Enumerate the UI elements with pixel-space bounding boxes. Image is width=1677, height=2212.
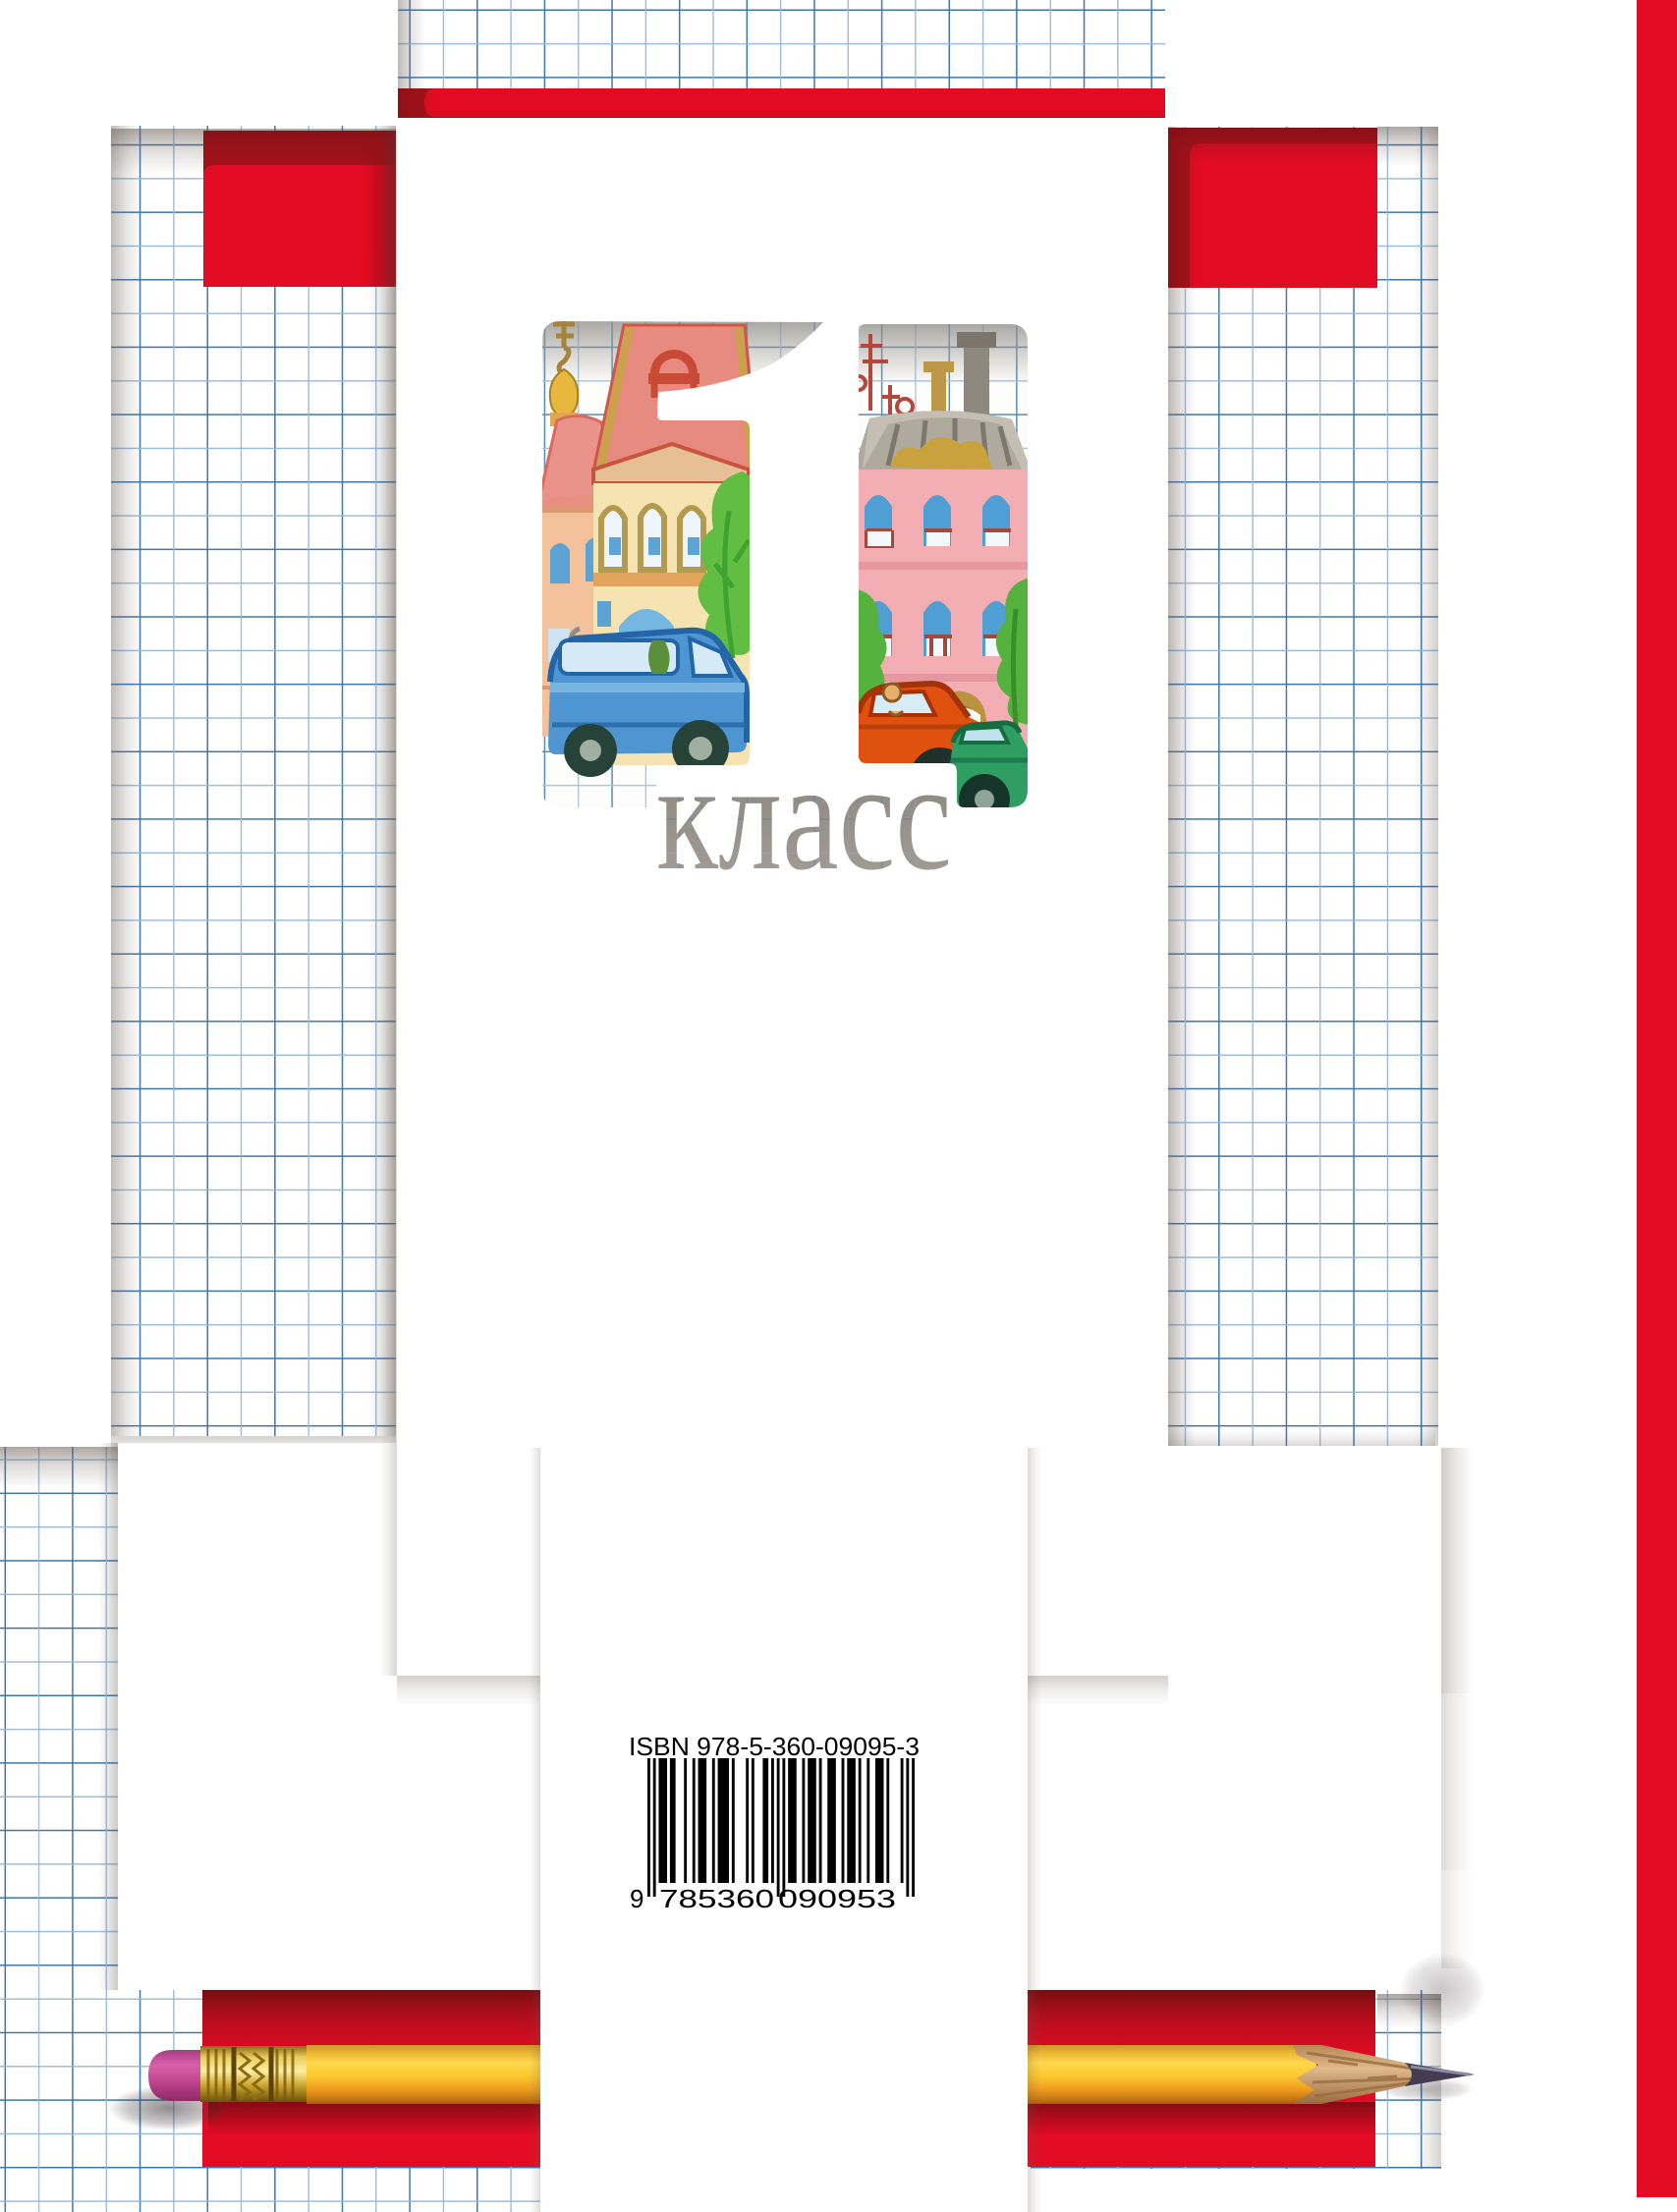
svg-text:класс: класс [656,731,952,903]
svg-text:785360: 785360 [659,1884,774,1913]
svg-text:ISBN 978-5-360-09095-3: ISBN 978-5-360-09095-3 [629,1732,920,1761]
svg-text:090953: 090953 [778,1884,896,1913]
svg-text:9: 9 [630,1884,643,1913]
